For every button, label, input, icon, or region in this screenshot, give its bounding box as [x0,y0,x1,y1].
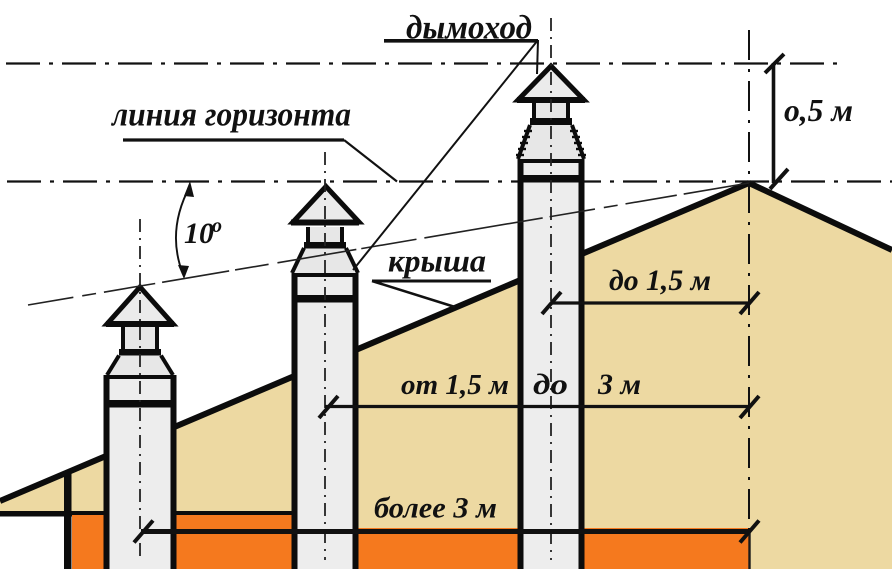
svg-text:крыша: крыша [388,243,486,279]
svg-text:о: о [212,215,222,237]
svg-text:более 3 м: более 3 м [374,492,497,525]
svg-text:о,5 м: о,5 м [784,92,853,128]
svg-text:от 1,5 м: от 1,5 м [401,369,509,401]
svg-text:линия горизонта: линия горизонта [110,97,351,134]
svg-text:10: 10 [184,217,214,250]
svg-text:до: до [533,368,568,401]
svg-text:3 м: 3 м [597,368,641,401]
svg-text:до 1,5 м: до 1,5 м [609,264,711,297]
